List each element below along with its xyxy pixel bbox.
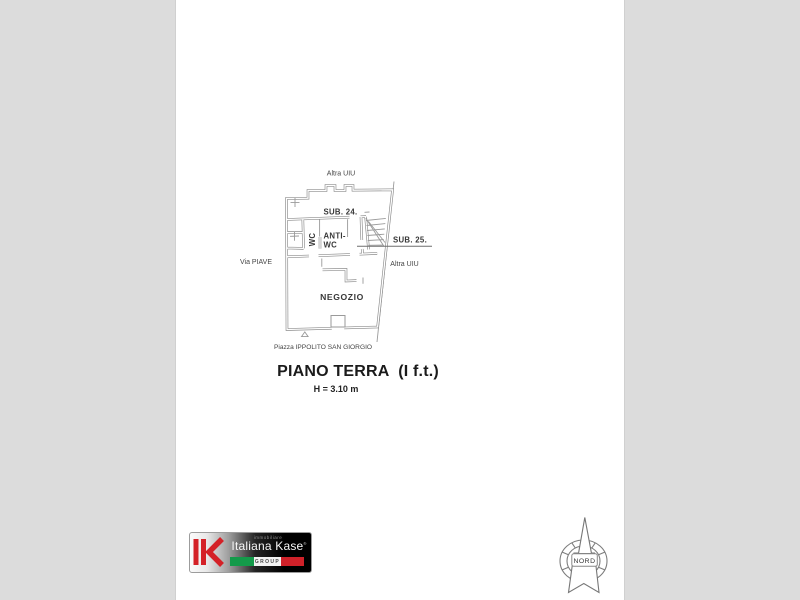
entrance-vestibule: [331, 316, 345, 328]
plan-height-note: H = 3.10 m: [286, 384, 386, 394]
north-compass-icon: NORD: [553, 507, 617, 600]
flag-red-segment: [281, 557, 304, 566]
street-label-top: Altra UIU: [327, 171, 355, 178]
page-background: Altra UIU SUB. 24. WC ANTI- WC SUB. 25. …: [0, 0, 800, 600]
logo-brand-text: Italiana Kase: [231, 539, 303, 553]
north-needle: [579, 518, 592, 554]
ik-monogram-icon: [192, 536, 230, 570]
room-label-sub24: SUB. 24.: [323, 208, 357, 217]
room-label-wc: WC: [308, 233, 317, 247]
flag-green-segment: [230, 557, 254, 566]
entrance-triangle-mark: [302, 332, 309, 337]
compass-label: NORD: [573, 558, 595, 565]
floor-plan-drawing: Altra UIU SUB. 24. WC ANTI- WC SUB. 25. …: [230, 160, 470, 360]
flag-white-segment: GROUP: [254, 557, 281, 566]
street-label-bottom: Piazza IPPOLITO SAN GIORGIO: [274, 344, 372, 351]
room-label-sub25: SUB. 25.: [393, 235, 427, 244]
logo-group-label: GROUP: [255, 559, 280, 565]
street-label-right: Altra UIU: [390, 261, 418, 268]
plan-title: PIANO TERRA (I f.t.): [258, 363, 458, 381]
agency-logo: immobiliare Italiana Kase® GROUP: [189, 532, 312, 573]
logo-flag-band: GROUP: [230, 557, 304, 566]
logo-brand: Italiana Kase®: [230, 539, 308, 553]
room-label-negozio: NEGOZIO: [320, 292, 364, 302]
room-label-antiwc-line2: WC: [324, 240, 338, 249]
logo-trademark: ®: [303, 541, 306, 546]
street-label-left: Via PIAVE: [240, 259, 272, 266]
room-label-antiwc-line1: ANTI-: [324, 231, 346, 240]
